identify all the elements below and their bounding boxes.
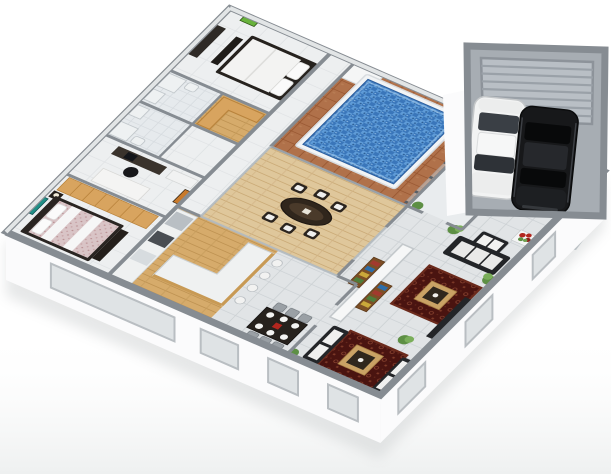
floor-plan-render [0,0,611,474]
scene-svg [0,0,611,474]
black-car [511,105,580,214]
garage [443,46,605,216]
